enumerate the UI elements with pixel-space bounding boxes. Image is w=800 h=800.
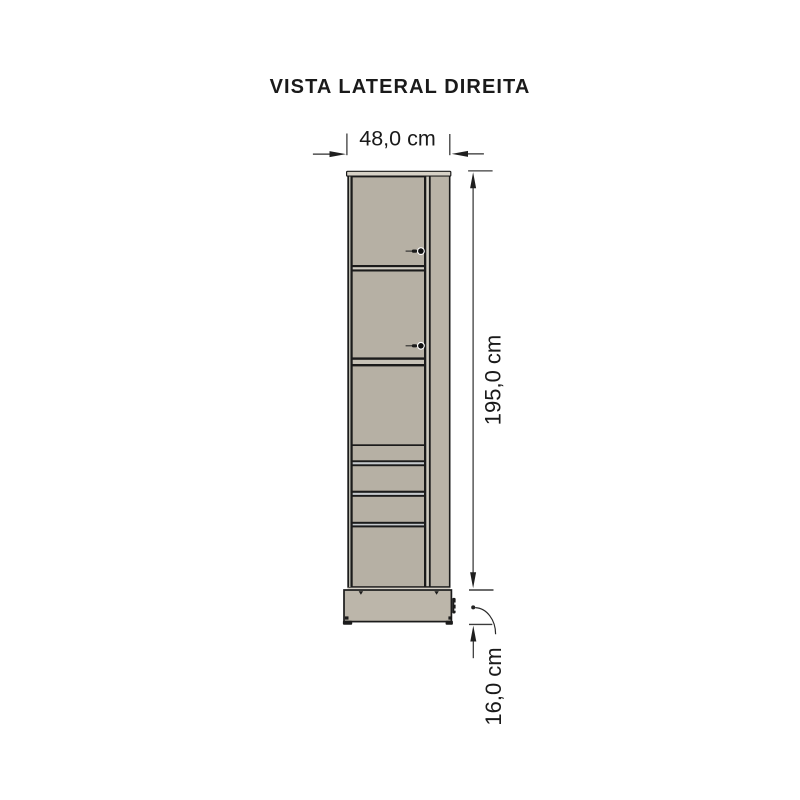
svg-text:16,0 cm: 16,0 cm [481, 647, 506, 725]
svg-text:48,0 cm: 48,0 cm [359, 126, 435, 150]
svg-text:VISTA LATERAL DIREITA: VISTA LATERAL DIREITA [270, 76, 531, 98]
svg-text:195,0 cm: 195,0 cm [480, 335, 505, 426]
